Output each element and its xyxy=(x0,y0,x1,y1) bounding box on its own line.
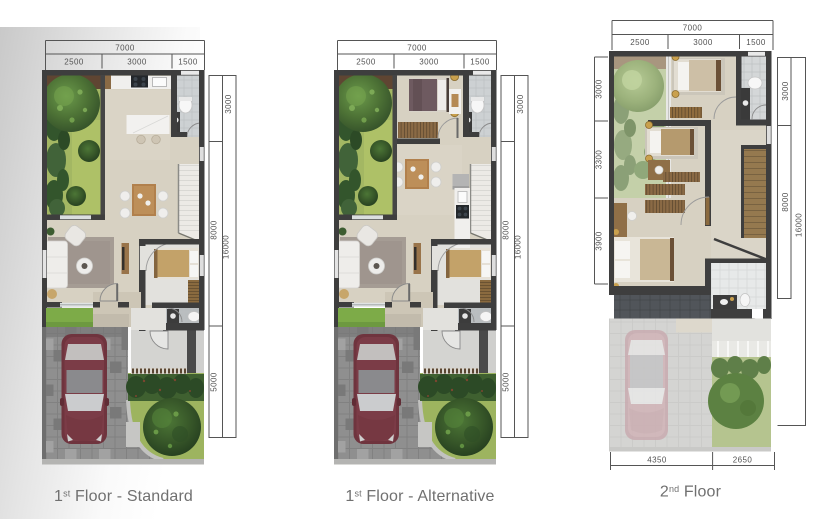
svg-text:4350: 4350 xyxy=(647,456,667,465)
svg-text:16000: 16000 xyxy=(795,213,804,237)
svg-text:3000: 3000 xyxy=(224,94,233,114)
svg-text:2500: 2500 xyxy=(64,57,84,66)
svg-text:3900: 3900 xyxy=(595,231,604,251)
svg-text:1st Floor - Standard: 1st Floor - Standard xyxy=(54,488,193,505)
svg-text:7000: 7000 xyxy=(407,44,427,53)
svg-text:3000: 3000 xyxy=(595,79,604,99)
svg-text:2500: 2500 xyxy=(356,57,376,66)
svg-text:8000: 8000 xyxy=(781,192,790,212)
svg-text:3000: 3000 xyxy=(419,57,439,66)
svg-text:3000: 3000 xyxy=(693,38,713,47)
svg-text:3000: 3000 xyxy=(781,81,790,101)
svg-text:2650: 2650 xyxy=(733,456,753,465)
svg-text:3000: 3000 xyxy=(127,57,147,66)
svg-text:2500: 2500 xyxy=(630,38,650,47)
svg-text:5000: 5000 xyxy=(210,372,219,392)
svg-text:3300: 3300 xyxy=(595,150,604,170)
svg-text:3000: 3000 xyxy=(516,94,525,114)
svg-text:1st Floor - Alternative: 1st Floor - Alternative xyxy=(345,488,494,505)
svg-text:1500: 1500 xyxy=(470,57,490,66)
svg-text:1500: 1500 xyxy=(178,57,198,66)
svg-text:5000: 5000 xyxy=(502,372,511,392)
svg-text:16000: 16000 xyxy=(222,235,231,259)
svg-text:8000: 8000 xyxy=(210,220,219,240)
svg-text:7000: 7000 xyxy=(115,44,135,53)
svg-text:7000: 7000 xyxy=(683,24,703,33)
svg-text:2nd Floor: 2nd Floor xyxy=(660,484,722,501)
svg-text:16000: 16000 xyxy=(514,235,523,259)
svg-text:8000: 8000 xyxy=(502,220,511,240)
svg-text:1500: 1500 xyxy=(746,38,766,47)
